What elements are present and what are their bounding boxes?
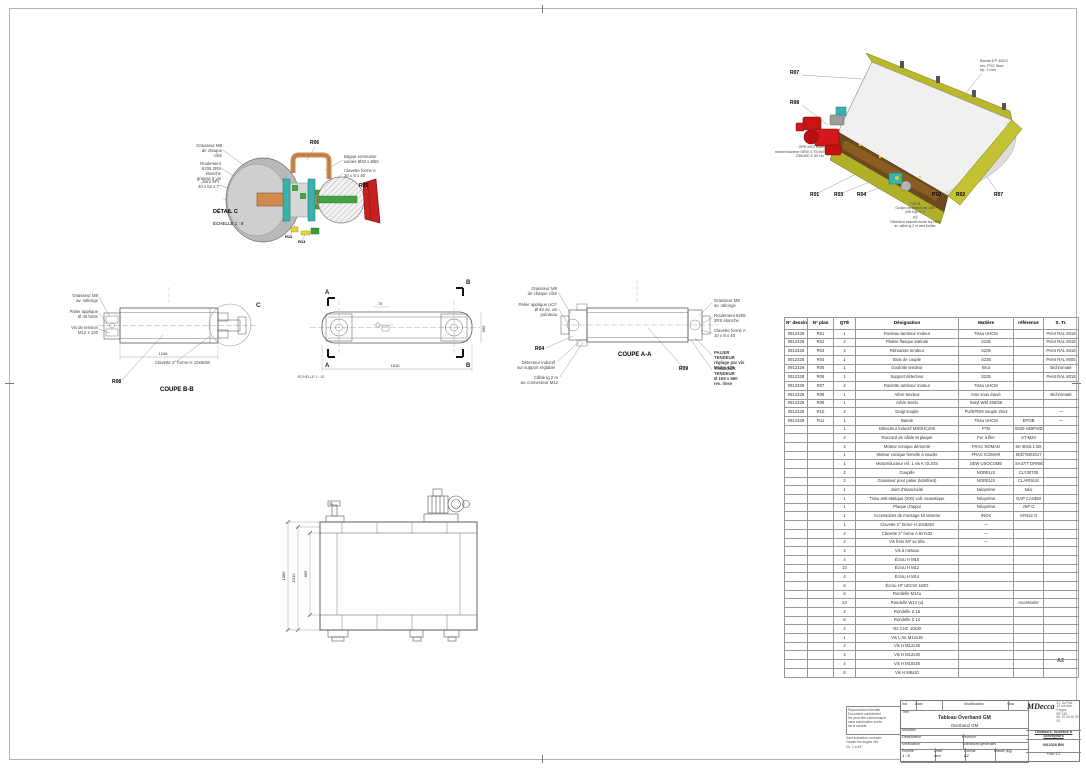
bom-cell: 24 <box>834 599 856 608</box>
aa-callout-left-1: Graisseur M8 de chaque côté <box>517 286 557 296</box>
bom-cell <box>1044 625 1079 634</box>
bom-cell: Plaque d'appui <box>856 503 959 512</box>
bom-cell: NORELIS <box>959 477 1014 486</box>
bom-row: 6Écrou HT UECW 160G <box>785 581 1079 590</box>
bom-cell: Tissu UHCM <box>959 330 1014 339</box>
bom-cell <box>808 538 834 547</box>
bom-cell: Peint RAL 6018 <box>1044 373 1079 382</box>
bom-header-cell: S. Tr. <box>1044 318 1079 330</box>
bom-cell <box>1044 503 1079 512</box>
bom-cell: Bichromaté <box>1044 390 1079 399</box>
tb-format-value: A2 <box>964 753 994 758</box>
detail-callout-spacer: Bague entretoise usinée Ø40 x Ø50 <box>344 154 380 164</box>
bom-cell: Rouleau tambour moteur <box>856 330 959 339</box>
bom-cell: Écrou H M14 <box>856 573 959 582</box>
bom-cell: R10 <box>808 408 834 417</box>
bom-cell: Rondelle Z 14 <box>856 616 959 625</box>
bom-cell <box>959 608 1014 617</box>
bom-cell: 10 <box>834 564 856 573</box>
bom-cell <box>1044 616 1079 625</box>
bom-cell <box>1014 330 1044 339</box>
bom-cell: 1 <box>834 634 856 643</box>
bom-cell: 2 <box>834 608 856 617</box>
bom-cell <box>808 460 834 469</box>
bom-cell: — <box>959 521 1014 530</box>
bom-cell: Écrou H M10 <box>856 555 959 564</box>
bom-cell: NORELIS <box>959 469 1014 478</box>
bom-cell <box>1044 460 1079 469</box>
bom-cell <box>1044 469 1079 478</box>
bom-cell: Raclette tambour moteur <box>856 382 959 391</box>
bom-cell: SK 9016.1 BX <box>1014 442 1044 451</box>
bom-cell: Néoprène <box>959 495 1014 504</box>
bom-cell <box>959 660 1014 669</box>
bom-cell: 0912328 <box>785 382 808 391</box>
bom-cell: 6 <box>834 616 856 625</box>
bom-cell: — <box>1044 416 1079 425</box>
company-logo: MDecca <box>1027 702 1055 712</box>
bom-cell <box>808 442 834 451</box>
bom-cell: R01 <box>808 330 834 339</box>
bom-cell: 0912328 <box>785 364 808 373</box>
bom-cell: SEW USOCOME <box>959 460 1014 469</box>
bom-cell: Vis H M10x25 <box>856 660 959 669</box>
bom-cell: Rondelle Z 16 <box>856 608 959 617</box>
bom-cell: 2 <box>834 469 856 478</box>
bom-cell: Rondelle W14 (u) <box>856 599 959 608</box>
bom-row: 4Écrou H M14 <box>785 573 1079 582</box>
plan-dim-width: 1510 <box>391 363 401 368</box>
bom-cell <box>1014 347 1044 356</box>
bom-cell: Réhausse tendeur <box>856 347 959 356</box>
bom-cell <box>1044 564 1079 573</box>
bom-row: 0912328R011Rouleau tambour moteurTissu U… <box>785 330 1079 339</box>
bom-cell: 0912328 <box>785 399 808 408</box>
note-below: Sauf indication contraire : Casser les a… <box>846 736 903 749</box>
bom-cell <box>1044 495 1079 504</box>
bom-row: 4Vis H M12x30 <box>785 651 1079 660</box>
iso-view: R07 R08 Bande EP 400/3 rev. PVC lisse ép… <box>770 45 1070 245</box>
bom-row: 1Moteur conique femelle à souderFRAC ICE… <box>785 451 1079 460</box>
bom-cell <box>785 451 808 460</box>
bom-cell <box>808 529 834 538</box>
bom-cell: 1 <box>834 512 856 521</box>
bom-cell: 2 <box>834 434 856 443</box>
bom-cell: — <box>959 538 1014 547</box>
tb-mass-label: Masse (kg) <box>994 749 1027 753</box>
bom-cell <box>1014 521 1044 530</box>
bb-callout-3: Vis de tension M12 x 120 <box>60 325 98 335</box>
bom-cell: 2 <box>834 347 856 356</box>
bom-cell <box>808 451 834 460</box>
bom-cell: Accessoire <box>1014 599 1044 608</box>
bom-row: 2GoupilleNORELISCLY30705 <box>785 469 1079 478</box>
bom-cell <box>1044 434 1079 443</box>
bom-cell: GAP CASEM <box>1014 495 1044 504</box>
bom-cell <box>808 469 834 478</box>
bom-row: 0912328R041Bras de coupleS235Peint RAL 9… <box>785 356 1079 365</box>
front-dim-3: 895 <box>303 570 308 577</box>
bom-cell <box>1044 555 1079 564</box>
bom-cell <box>808 503 834 512</box>
iso-label-r02: R02 <box>956 192 965 198</box>
bom-cell <box>959 599 1014 608</box>
bb-caption: COUPE B-B <box>160 387 194 393</box>
bom-cell <box>1014 547 1044 556</box>
bom-cell: Inox sous étuvé <box>959 390 1014 399</box>
bom-cell <box>1044 590 1079 599</box>
bom-cell: R02 <box>808 338 834 347</box>
bom-cell: ST-M20 <box>1014 434 1044 443</box>
bom-cell: 1 <box>834 521 856 530</box>
bom-cell <box>808 547 834 556</box>
frame-tick-bottom <box>542 755 543 763</box>
plan-view: A A B B 1510 560 75 ÉCHELLE 1 : 10 <box>295 265 490 383</box>
bom-cell: Doigt souple <box>856 408 959 417</box>
bom-cell: AFN12 G <box>1014 512 1044 521</box>
bom-row: 2Rondelle Z 16 <box>785 608 1079 617</box>
bom-header-row: N° dessinN° planQTÉDésignationMatièreréf… <box>785 318 1079 330</box>
aa-callout-left-2: Palier applique UCF Ø 40 av. vis pointea… <box>517 302 557 317</box>
bom-cell <box>1014 616 1044 625</box>
bom-cell: Tissu UHCM <box>959 416 1014 425</box>
iso-label-r08: R08 <box>790 100 799 106</box>
bom-cell: 1 <box>834 399 856 408</box>
bom-cell <box>785 634 808 643</box>
detail-caption-scale: ÉCHELLE 1 : 8 <box>213 221 244 226</box>
bom-cell <box>959 564 1014 573</box>
bom-cell: SKD750/2017 <box>1014 451 1044 460</box>
bom-cell: 4 <box>834 660 856 669</box>
tb-folio: Folio 1/1 <box>1026 751 1081 762</box>
bom-cell <box>1014 581 1044 590</box>
bom-cell <box>1014 529 1044 538</box>
bom-row: 6Vis H M8x20 <box>785 668 1079 677</box>
aa-label-r09: R09 <box>679 366 688 372</box>
bom-cell <box>1044 668 1079 677</box>
aa-callout-right-3: Clavette forme A 10 x 8 x 40 <box>714 328 750 338</box>
plan-marker-a-bottom: A <box>325 363 330 369</box>
bom-cell <box>808 434 834 443</box>
bom-cell <box>1044 608 1079 617</box>
bom-cell <box>808 555 834 564</box>
plan-marker-b-bottom: B <box>466 363 471 369</box>
bom-cell <box>785 625 808 634</box>
bom-row: 1Vis L NL M12x35 <box>785 634 1079 643</box>
bom-cell: 0912328 <box>785 347 808 356</box>
front-dim-2: 1010 <box>291 573 296 583</box>
bom-cell: Goupille <box>856 469 959 478</box>
bom-cell <box>785 590 808 599</box>
iso-label-r04: R04 <box>857 192 866 198</box>
bom-cell <box>1014 634 1044 643</box>
bom-cell: 1 <box>834 390 856 399</box>
bom-cell <box>808 477 834 486</box>
bom-cell: 2 <box>834 538 856 547</box>
iso-label-p10: P10 <box>932 192 941 198</box>
bom-cell: Détecteur inductif M30/HC200 <box>856 425 959 434</box>
bom-cell <box>1044 599 1079 608</box>
bom-row: 2Raccord de câble M plaquéFer à filerST-… <box>785 434 1079 443</box>
bom-cell: R11 <box>808 416 834 425</box>
bom-cell: FRAC ICEMAR <box>959 451 1014 460</box>
tb-format-cell: Format A2 <box>963 748 996 763</box>
bom-cell: Tissu anti-statique (200) volt. acoustiq… <box>856 495 959 504</box>
bom-cell <box>1014 399 1044 408</box>
bom-cell: 1 <box>834 486 856 495</box>
iso-note-motor: GPE MOTEUR motoréducteur SEW 0,75 kW 230… <box>770 145 824 159</box>
bom-cell: Vis H M12x35 <box>856 642 959 651</box>
bom-cell: 0912328 <box>785 330 808 339</box>
bom-cell: Peint RAL 9005 <box>1044 356 1079 365</box>
bom-cell <box>959 625 1014 634</box>
bom-cell: R06 <box>808 373 834 382</box>
bom-cell: Arbre tendeur <box>856 390 959 399</box>
iso-note-2: P9 Détecteur inductif monté sur R04 av. … <box>855 216 975 228</box>
bom-cell: Bras de couple <box>856 356 959 365</box>
bom-cell <box>785 425 808 434</box>
bom-cell: 0912328 <box>785 356 808 365</box>
bom-row: 24Rondelle W14 (u)Accessoire <box>785 599 1079 608</box>
tb-mass-cell: Masse (kg) <box>993 748 1029 763</box>
front-art: 1085 1010 895 <box>278 483 493 658</box>
bom-cell <box>959 590 1014 599</box>
bb-callout-1: Graisseur M8 av. rallonge <box>60 293 98 303</box>
bom-header-cell: QTÉ <box>834 318 856 330</box>
bom-cell <box>808 581 834 590</box>
bom-cell: Peint RAL 6018 <box>1044 330 1079 339</box>
bom-row: 0912328R032Réhausse tendeurS235Peint RAL… <box>785 347 1079 356</box>
bom-cell <box>808 642 834 651</box>
bom-cell <box>808 512 834 521</box>
bom-cell: 1 <box>834 356 856 365</box>
bom-cell: 1 <box>834 451 856 460</box>
plan-marker-a-top: A <box>325 290 330 296</box>
detail-label-r05: R05 <box>359 183 368 189</box>
bom-cell <box>1044 521 1079 530</box>
plan-dim-small: 75 <box>378 302 382 306</box>
bom-cell <box>1044 477 1079 486</box>
bom-row: 0912328R022Platine flasque latéraleS235P… <box>785 338 1079 347</box>
bom-cell: Brut <box>959 364 1014 373</box>
bom-row: 0912328R091Arbre tenduButyl WM 260/38 <box>785 399 1079 408</box>
frame-tick-top <box>542 5 543 13</box>
iso-label-r01: R01 <box>810 192 819 198</box>
bom-cell: 2 <box>834 382 856 391</box>
bom-body: 0912328R011Rouleau tambour moteurTissu U… <box>785 330 1079 678</box>
plan-art: A A B B 1510 560 75 <box>295 265 490 383</box>
bom-cell <box>959 651 1014 660</box>
bom-cell <box>808 625 834 634</box>
aa-label-r04: R04 <box>535 346 544 352</box>
bb-label-r08: R08 <box>112 379 121 385</box>
aa-callout-right-5: TAMBOUR TENDEUR Ø 159 x 560 rev. lisse <box>714 366 750 387</box>
bom-cell: 4 <box>834 555 856 564</box>
note-box: Reproduction interdite Document confiden… <box>846 706 907 735</box>
bom-cell <box>808 668 834 677</box>
bom-cell <box>785 573 808 582</box>
bom-cell <box>959 634 1014 643</box>
bom-cell: 1 <box>834 503 856 512</box>
plan-dim-height: 560 <box>481 325 486 332</box>
bom-cell <box>1044 529 1079 538</box>
bom-cell: R03 <box>808 347 834 356</box>
iso-label-r07-right: R07 <box>994 192 1003 198</box>
bom-cell: 1 <box>834 330 856 339</box>
bom-cell <box>1014 408 1044 417</box>
iso-label-r07-top: R07 <box>790 70 799 76</box>
bom-cell <box>785 564 808 573</box>
bom-cell: Support détecteur <box>856 373 959 382</box>
bom-row: 1Plaque d'appuiNéoprèneJSP G <box>785 503 1079 512</box>
bom-cell <box>785 512 808 521</box>
bom-cell: Goulotte tendeur <box>856 364 959 373</box>
bom-row: 2Vis H M12x35 <box>785 642 1079 651</box>
bom-row: 4Écrou H M10 <box>785 555 1079 564</box>
bom-cell <box>959 555 1014 564</box>
bom-cell <box>785 668 808 677</box>
bom-cell: Néoprène <box>959 486 1014 495</box>
bom-cell: Fer à filer <box>959 434 1014 443</box>
bom-cell <box>1014 642 1044 651</box>
plan-scale-note: ÉCHELLE 1 : 10 <box>298 375 324 379</box>
bom-cell: Vis L NL M12x35 <box>856 634 959 643</box>
bom-cell <box>785 529 808 538</box>
bom-header-cell: Désignation <box>856 318 959 330</box>
bom-row: 2Vis CHC 10x30 <box>785 625 1079 634</box>
bom-cell: 2 <box>834 338 856 347</box>
bom-cell <box>808 651 834 660</box>
bom-cell <box>785 434 808 443</box>
front-dim-1: 1085 <box>281 571 286 581</box>
bom-cell <box>1044 399 1079 408</box>
bom-cell: Écrou H M12 <box>856 564 959 573</box>
bom-cell: CLY30705 <box>1014 469 1044 478</box>
bom-row: 0912328R102Doigt souplePU/EPDM souple 20… <box>785 408 1079 417</box>
bom-row: 4Vis H M10x25 <box>785 660 1079 669</box>
detail-callout-grease: Graisseur M8 de chaque côté <box>195 143 222 158</box>
bom-cell: Clavette 2° forme H 10x8x50 <box>856 521 959 530</box>
bom-cell <box>1044 382 1079 391</box>
bom-cell: PU/EPDM souple 20x3 <box>959 408 1014 417</box>
bom-cell: 6 <box>834 668 856 677</box>
bom-cell: 0912328 <box>785 408 808 417</box>
bom-cell <box>1014 651 1044 660</box>
bom-cell: JSP G <box>1014 503 1044 512</box>
bom-cell: Motoréducteur réf. 1 vis K OLIOS <box>856 460 959 469</box>
bom-cell <box>808 616 834 625</box>
bom-cell <box>785 651 808 660</box>
bom-cell: Butyl WM 260/38 <box>959 399 1014 408</box>
bom-cell: 0912328 <box>785 390 808 399</box>
detail-label-r13: R13 <box>298 240 305 245</box>
bom-cell <box>785 442 808 451</box>
frame-tick-left <box>5 383 14 384</box>
tb-scale-value: 1 : 8 <box>902 753 934 758</box>
bom-cell: Bichromaté <box>1044 364 1079 373</box>
bom-cell <box>959 547 1014 556</box>
coupe-bb-view: C 1246 Graisseur M8 av. rallonge Palier … <box>60 285 265 397</box>
bom-cell: 1 <box>834 373 856 382</box>
bom-cell: SA47/T DRN80 <box>1014 460 1044 469</box>
bom-cell: 1 <box>834 460 856 469</box>
bom-cell <box>785 538 808 547</box>
bom-cell: S235 <box>959 373 1014 382</box>
bom-row: 1Détecteur inductif M30/HC200PTBIM30-15B… <box>785 425 1079 434</box>
front-view: 1085 1010 895 <box>278 483 493 658</box>
bom-cell <box>959 668 1014 677</box>
bom-cell: 4 <box>834 573 856 582</box>
bom-cell <box>1014 608 1044 617</box>
bom-cell: Raccord de câble M plaqué <box>856 434 959 443</box>
bom-cell <box>1014 364 1044 373</box>
bom-cell: EP/3B <box>1014 416 1044 425</box>
bom-cell <box>1044 442 1079 451</box>
bom-cell <box>1044 642 1079 651</box>
bom-cell: INOX <box>959 512 1014 521</box>
bom-cell: Peint RAL 6018 <box>1044 347 1079 356</box>
bom-row: 1Accessoires de montage kit visserieINOX… <box>785 512 1079 521</box>
detail-callout-key: Clavette forme A 10 x 8 x 40 <box>344 168 380 178</box>
bom-cell: 1 <box>834 425 856 434</box>
bom-cell <box>959 573 1014 582</box>
bom-cell: 2 <box>834 477 856 486</box>
bom-cell <box>1014 382 1044 391</box>
tb-title-label: Titre : <box>902 710 911 714</box>
bom-cell <box>1014 390 1044 399</box>
detail-view: Graisseur M8 de chaque côté Roulement 62… <box>195 135 380 250</box>
bom-cell: S235 <box>959 347 1014 356</box>
coupe-bb-detail-letter: C <box>256 302 261 309</box>
bom-row: 1Clavette 2° forme H 10x8x50— <box>785 521 1079 530</box>
aa-callout-bottom-1: Détecteur inductif sur support réglable <box>513 360 555 370</box>
bom-cell: 1 <box>834 364 856 373</box>
bom-cell: FRAC NOMAD <box>959 442 1014 451</box>
bom-cell: 1 <box>834 416 856 425</box>
bom-cell <box>1044 486 1079 495</box>
bom-cell <box>785 521 808 530</box>
bom-cell <box>1044 547 1079 556</box>
bom-cell: Bande <box>856 416 959 425</box>
bom-cell <box>785 581 808 590</box>
bom-cell: S235 <box>959 338 1014 347</box>
bom-cell <box>1044 634 1079 643</box>
bom-cell: 0912328 <box>785 416 808 425</box>
bom-cell: 0912328 <box>785 338 808 347</box>
drawing-sheet: Graisseur M8 de chaque côté Roulement 62… <box>0 0 1086 768</box>
bom-row: 1Motoréducteur réf. 1 vis K OLIOSSEW USO… <box>785 460 1079 469</box>
bom-cell: 2 <box>834 625 856 634</box>
company-address: Z.I. du Port 12 rue des Forges BP 128 té… <box>1057 702 1080 724</box>
bom-cell: 2 <box>834 642 856 651</box>
bom-cell <box>1014 660 1044 669</box>
bom-cell: Graisseur pour palier (lubrifiant) <box>856 477 959 486</box>
bom-header-cell: N° dessin <box>785 318 808 330</box>
bom-header-cell: N° plan <box>808 318 834 330</box>
bom-row: 1Tissu anti-statique (200) volt. acousti… <box>785 495 1079 504</box>
tb-unit-cell: Unité mm <box>933 748 966 763</box>
bom-cell: Vis CHC 10x30 <box>856 625 959 634</box>
bom-cell <box>1014 538 1044 547</box>
tb-title-area: Titre : Tableau Overband GM Overband GM <box>901 709 1029 729</box>
bom-row: 6Rondelle Z 14 <box>785 616 1079 625</box>
bom-cell: R04 <box>808 356 834 365</box>
bom-row: 0912328R051Goulotte tendeurBrutBichromat… <box>785 364 1079 373</box>
bom-cell: Moteur conique démonté <box>856 442 959 451</box>
bom-cell <box>808 599 834 608</box>
bom-cell <box>1014 564 1044 573</box>
aa-callout-right-1: Graisseur M8 av. rallonge <box>714 298 750 308</box>
